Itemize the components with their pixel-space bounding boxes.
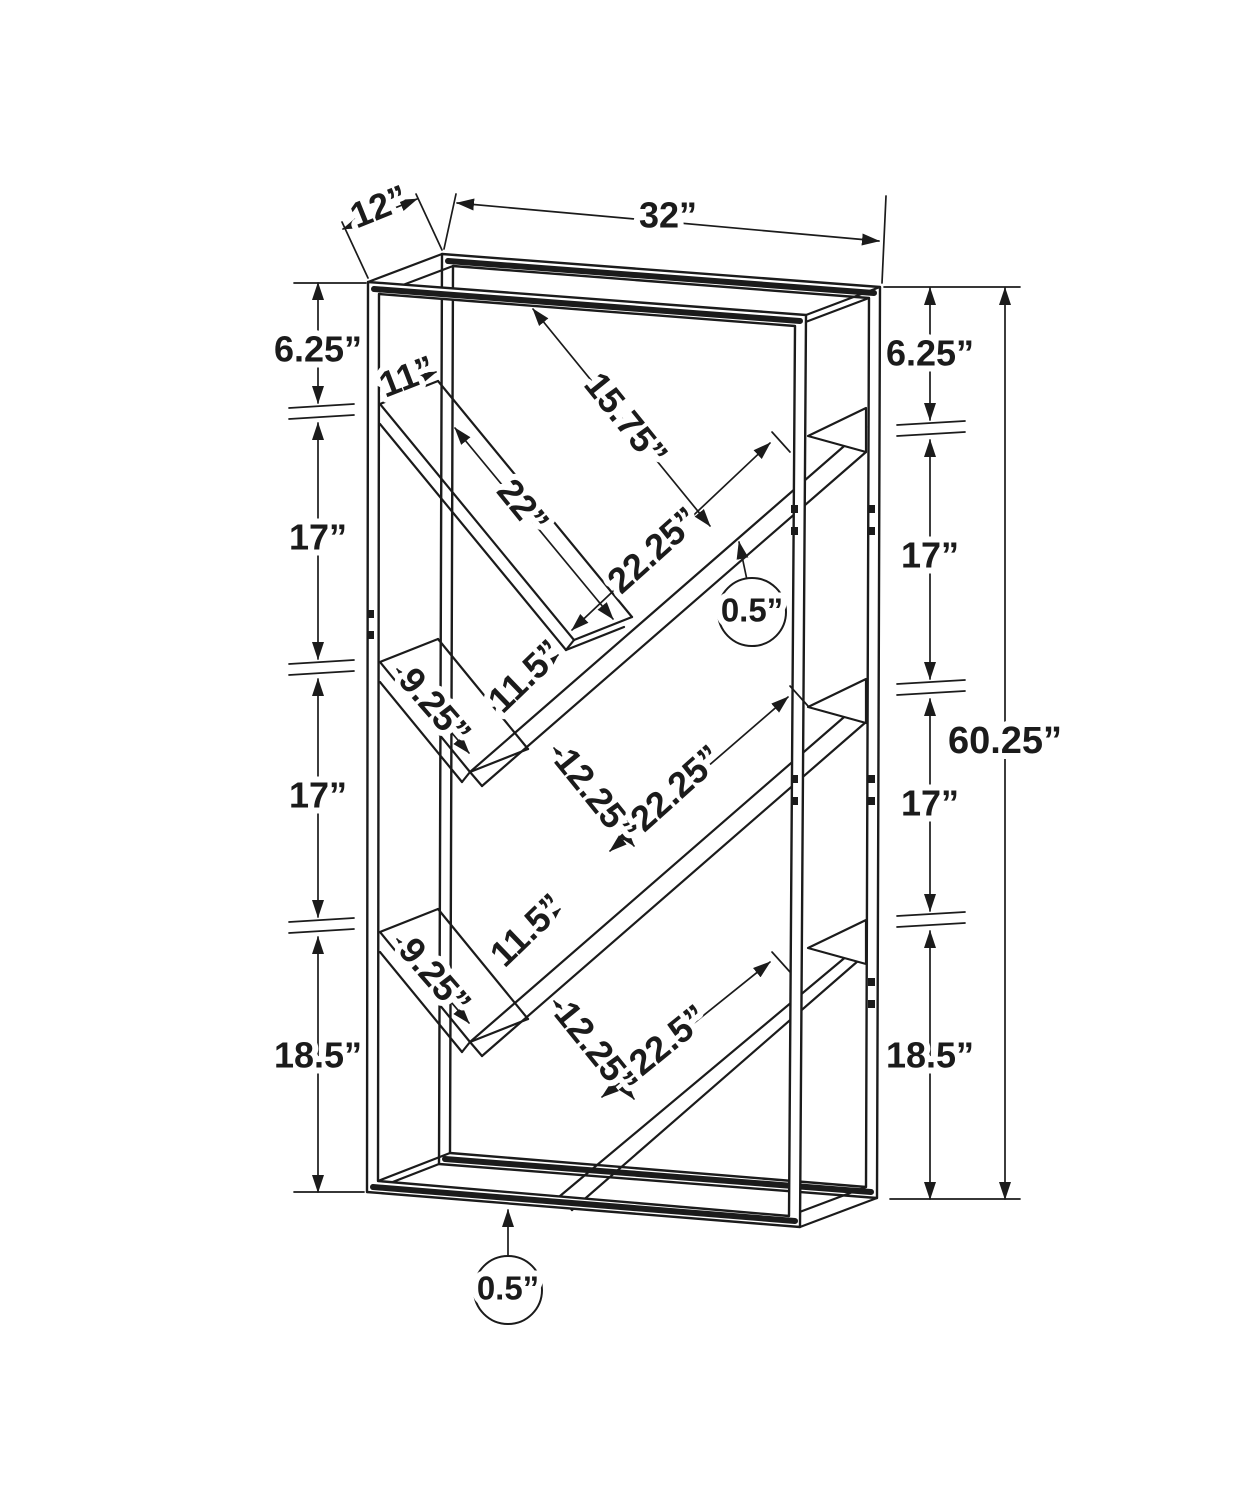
bookcase-dimension-diagram: 12” 32” 6.25” 17” 17” 18.5” 6.25” 17” 17…	[0, 0, 1236, 1500]
dim-left-0: 6.25”	[274, 329, 362, 370]
dim-top-clearance: 15.75”	[576, 364, 676, 474]
dim-depth: 12”	[344, 176, 413, 236]
dim-upper-long-shelf: 22.25”	[599, 498, 707, 601]
dim-left-2: 17”	[289, 775, 347, 816]
dim-middle-long-shelf: 22.25”	[622, 736, 730, 839]
dim-right-3: 18.5”	[886, 1035, 974, 1076]
dim-width: 32”	[639, 195, 697, 236]
dim-left-3: 18.5”	[274, 1035, 362, 1076]
technical-drawing-canvas: 12” 32” 6.25” 17” 17” 18.5” 6.25” 17” 17…	[0, 0, 1236, 1500]
dim-right-0: 6.25”	[886, 333, 974, 374]
dim-middle-gap: 12.25”	[546, 740, 646, 850]
dim-overall-height: 60.25”	[948, 720, 1062, 762]
dim-shelf-thickness: 0.5”	[721, 592, 783, 629]
dim-base-thickness: 0.5”	[477, 1270, 539, 1307]
dim-shelf-depth: 11”	[373, 347, 440, 405]
dim-left-1: 17”	[289, 517, 347, 558]
dim-bottom-long-shelf: 22.5”	[621, 996, 715, 1083]
dim-right-2: 17”	[901, 783, 959, 824]
dimension-labels: 12” 32” 6.25” 17” 17” 18.5” 6.25” 17” 17…	[274, 176, 1062, 1306]
dim-right-1: 17”	[901, 535, 959, 576]
dim-lower-gap: 11.5”	[482, 885, 572, 974]
